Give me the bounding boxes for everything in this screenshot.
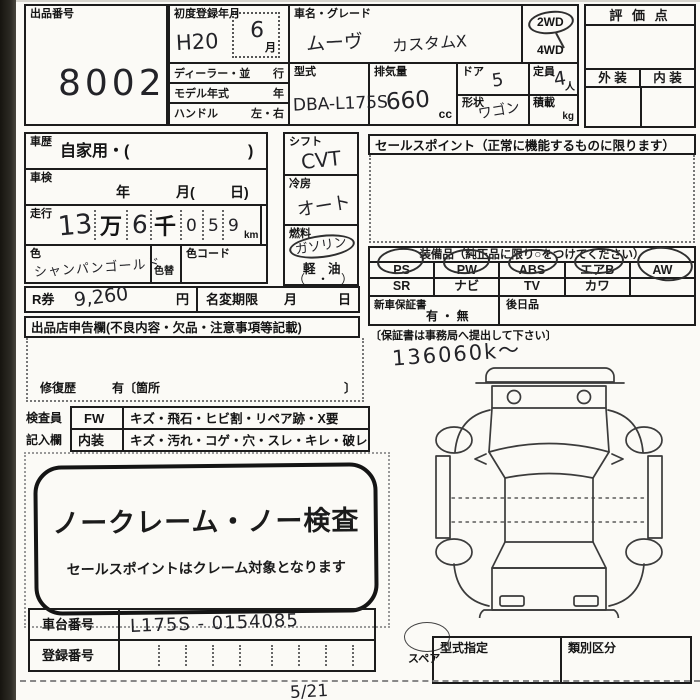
taillight-left bbox=[500, 596, 524, 606]
warranty-box: 新車保証書 有 ・ 無 後日品 bbox=[368, 295, 696, 326]
car-name-label: 車名・グレード bbox=[294, 8, 371, 21]
warranty-label: 新車保証書 bbox=[374, 299, 427, 311]
taillight-right bbox=[574, 596, 598, 606]
declaration-header-box: 出品店申告欄(不良内容・欠品・注意事項等記載) bbox=[24, 316, 360, 338]
first-registration-label: 初度登録年月 bbox=[174, 8, 240, 21]
ac-box: 冷房 オート bbox=[283, 174, 359, 226]
equip-tv: TV bbox=[500, 279, 565, 295]
capacity-label: 定員 bbox=[533, 66, 555, 79]
regno-sep-8 bbox=[352, 645, 354, 666]
inspector-row1-key: FW bbox=[84, 412, 104, 427]
mileage-sep-2 bbox=[126, 210, 128, 240]
inspector-label-2: 記入欄 bbox=[26, 434, 62, 448]
fuel-box: 燃料 ガソリン 軽 油 （ ・ ） bbox=[283, 224, 359, 286]
mileage-digit-3: 9 bbox=[228, 218, 239, 235]
mileage-end-divider bbox=[260, 206, 262, 244]
rename-day-unit: 日 bbox=[338, 293, 351, 308]
car-damage-diagram bbox=[402, 356, 698, 618]
inspector-label-1: 検査員 bbox=[26, 412, 62, 426]
rear-bumper bbox=[480, 610, 619, 618]
windshield bbox=[489, 444, 609, 479]
registration-number-label: 登録番号 bbox=[42, 649, 94, 664]
regno-sep-5 bbox=[271, 645, 273, 666]
wheel-front-right bbox=[626, 427, 662, 453]
capacity-load-box: 定員 4 人 積載 kg bbox=[528, 62, 579, 126]
mileage-sep-3 bbox=[150, 210, 152, 240]
handle-options: 左・右 bbox=[251, 104, 284, 124]
lot-label: 出品番号 bbox=[30, 8, 74, 21]
later-items-label: 後日品 bbox=[506, 299, 539, 312]
color-label: 色 bbox=[30, 248, 41, 261]
door-label: ドア bbox=[462, 66, 484, 79]
sales-point-header-box: セールスポイント（正常に機能するものに限ります） bbox=[368, 134, 696, 155]
car-name-box: 車名・グレード ムーヴ カスタムX bbox=[288, 4, 523, 64]
mileage-10k-value: 13 bbox=[57, 211, 94, 241]
interior-score-label: 内 装 bbox=[641, 70, 694, 86]
type-designation-box: 型式指定 類別区分 bbox=[432, 636, 692, 684]
chassis-label-divider bbox=[118, 610, 120, 639]
stamp-subtitle: セールスポイントはクレーム対象となります bbox=[38, 556, 374, 580]
recycle-ticket-box: R券 9,260 円 名変期限 月 日 bbox=[24, 286, 360, 313]
auction-sheet: 出品番号 8002 初度登録年月 H20 6 月 車名・グレード ムーヴ カスタ… bbox=[0, 0, 700, 700]
mileage-10k-unit: 万 bbox=[100, 214, 122, 239]
type-designation-label: 型式指定 bbox=[440, 642, 488, 656]
mileage-sep-1 bbox=[94, 210, 96, 240]
shift-value: CVT bbox=[300, 148, 342, 172]
headlight-right bbox=[578, 391, 591, 404]
bottom-dashed-line bbox=[20, 680, 700, 682]
score-title: 評 価 点 bbox=[586, 6, 694, 26]
classification-label: 類別区分 bbox=[568, 642, 616, 656]
rename-month-unit: 月 bbox=[284, 293, 297, 308]
equip-empty bbox=[631, 279, 694, 295]
chassis-number-label: 車台番号 bbox=[42, 618, 94, 633]
no-claim-stamp: ノークレーム・ノー検査 セールスポイントはクレーム対象となります bbox=[33, 462, 379, 616]
dealer-label: ディーラー・並 bbox=[174, 64, 250, 82]
drive-type-box: 2WD 4WD bbox=[521, 4, 579, 64]
rear-window bbox=[492, 542, 606, 568]
model-year-row: モデル年式年 bbox=[170, 84, 288, 104]
color-code-label: 色コード bbox=[186, 248, 230, 261]
inspection-year-unit: 年 bbox=[116, 184, 130, 200]
mileage-sep-5 bbox=[202, 210, 204, 240]
door-shape-box: ドア 5 形状 ワゴン bbox=[456, 62, 530, 126]
wheel-rear-left bbox=[436, 539, 472, 565]
declaration-header: 出品店申告欄(不良内容・欠品・注意事項等記載) bbox=[31, 321, 302, 335]
load-unit: kg bbox=[562, 111, 574, 123]
front-panel bbox=[492, 386, 606, 408]
dealer-row: ディーラー・並行 bbox=[170, 64, 288, 84]
door-value: 5 bbox=[491, 71, 505, 90]
history-label: 車歴 bbox=[30, 136, 52, 149]
registration-month-value: 6 bbox=[249, 20, 264, 43]
displacement-label: 排気量 bbox=[374, 66, 407, 79]
scan-edge-artifact bbox=[0, 0, 16, 700]
type-box-divider bbox=[560, 638, 562, 682]
handle-label: ハンドル bbox=[174, 104, 218, 124]
equip-navi: ナビ bbox=[435, 279, 500, 295]
right-door-panel bbox=[648, 456, 662, 538]
fenders bbox=[454, 410, 644, 606]
inspector-row2-key: 内装 bbox=[78, 434, 104, 449]
headlight-left bbox=[508, 391, 521, 404]
color-change-label: 色替 bbox=[154, 266, 174, 278]
mirrors bbox=[475, 454, 623, 464]
inspection-label: 車検 bbox=[30, 172, 52, 185]
color-divider-1 bbox=[150, 246, 152, 282]
paper-top-edge bbox=[16, 0, 700, 2]
rticket-divider bbox=[196, 288, 198, 311]
shift-box: シフト CVT bbox=[283, 132, 359, 176]
drive-4wd-option: 4WD bbox=[537, 44, 564, 58]
lot-number-value: 8002 bbox=[58, 66, 166, 102]
registration-month-cell: 6 月 bbox=[232, 12, 280, 58]
displacement-unit: cc bbox=[439, 108, 452, 122]
repair-history-close: 〕 bbox=[344, 382, 356, 396]
date-note: 5/21 bbox=[290, 683, 329, 700]
stamp-title: ノークレーム・ノー検査 bbox=[38, 498, 374, 541]
model-code-box: 型式 DBA-L175S bbox=[288, 62, 370, 126]
history-paren-close: ) bbox=[248, 143, 253, 161]
fuel-paren: （ ・ ） bbox=[293, 273, 353, 287]
registration-number-row: 登録番号 bbox=[28, 639, 376, 672]
chassis-number-row: 車台番号 L175S - 0154085 bbox=[28, 608, 376, 641]
repair-history-label: 修復歴 bbox=[40, 382, 76, 396]
lot-number-box: 出品番号 8002 bbox=[24, 4, 168, 126]
history-value: 自家用・( bbox=[60, 143, 129, 161]
roof-sides bbox=[505, 478, 593, 542]
warranty-options: 有 ・ 無 bbox=[426, 310, 469, 324]
declaration-area: 修復歴 有〔箇所 〕 bbox=[26, 338, 364, 402]
front-bumper bbox=[486, 368, 614, 382]
inspection-date-box: 車検 年 月( 日) bbox=[24, 168, 268, 206]
inspector-col-divider bbox=[122, 408, 124, 450]
inspection-month-unit: 月( bbox=[176, 184, 195, 200]
mileage-digit-1: 0 bbox=[186, 218, 197, 235]
ac-value: オート bbox=[296, 194, 352, 220]
inspection-day-unit: 日) bbox=[230, 184, 249, 200]
regno-sep-3 bbox=[212, 645, 214, 666]
shift-label: シフト bbox=[289, 136, 322, 149]
capacity-load-divider bbox=[530, 94, 577, 96]
regno-sep-6 bbox=[298, 645, 300, 666]
displacement-value: 660 bbox=[385, 88, 430, 114]
warranty-divider bbox=[498, 297, 500, 324]
car-name-value: ムーヴ bbox=[306, 33, 364, 55]
dealer-label-right: 行 bbox=[273, 64, 284, 82]
sales-point-header: セールスポイント（正常に機能するものに限ります） bbox=[375, 139, 675, 153]
mileage-sep-6 bbox=[222, 210, 224, 240]
chassis-number-value: L175S - 0154085 bbox=[130, 612, 299, 636]
dealer-spec-box: ディーラー・並行 モデル年式年 ハンドル左・右 bbox=[168, 62, 290, 126]
load-label: 積載 bbox=[533, 97, 555, 110]
equipment-row-2: SR ナビ TV カワ bbox=[370, 279, 694, 295]
regno-sep-1 bbox=[158, 645, 160, 666]
repair-history-value: 有〔箇所 bbox=[112, 382, 160, 396]
wheel-rear-right bbox=[626, 539, 662, 565]
color-divider-2 bbox=[180, 246, 182, 282]
score-box: 評 価 点 外 装 内 装 bbox=[584, 4, 696, 128]
model-year-unit: 年 bbox=[273, 84, 284, 102]
ac-label: 冷房 bbox=[289, 178, 311, 191]
mileage-box: 走行 13 万 6 千 0 5 9 km bbox=[24, 204, 268, 246]
wheel-front-left bbox=[436, 427, 472, 453]
hood-sides bbox=[489, 408, 609, 452]
score-cell-divider bbox=[640, 88, 642, 126]
history-box: 車歴 自家用・( ) bbox=[24, 132, 268, 170]
regno-sep-7 bbox=[325, 645, 327, 666]
model-code-value: DBA-L175S bbox=[293, 94, 388, 114]
inspector-table: FW キズ・飛石・ヒビ割・リペア跡・X要 内装 キズ・汚れ・コゲ・穴・スレ・キレ… bbox=[70, 406, 370, 452]
yen-unit: 円 bbox=[176, 293, 189, 308]
inspector-row-divider bbox=[72, 428, 368, 430]
score-subheader: 外 装 内 装 bbox=[586, 68, 694, 88]
regno-sep-2 bbox=[185, 645, 187, 666]
exterior-score-label: 外 装 bbox=[586, 70, 641, 86]
color-value: シャンパンゴールド bbox=[34, 258, 161, 280]
mileage-label: 走行 bbox=[30, 208, 52, 221]
inspector-row1-value: キズ・飛石・ヒビ割・リペア跡・X要 bbox=[130, 412, 338, 426]
registration-year-value: H20 bbox=[175, 31, 219, 54]
handle-row: ハンドル左・右 bbox=[170, 104, 288, 124]
rear-panel bbox=[492, 568, 606, 610]
inspector-row2-value: キズ・汚れ・コゲ・穴・スレ・キレ・破レ bbox=[130, 434, 368, 448]
rename-deadline-label: 名変期限 bbox=[206, 293, 258, 308]
equip-leather: カワ bbox=[566, 279, 631, 295]
drive-2wd-circle-mark bbox=[527, 8, 575, 36]
mileage-sep-4 bbox=[180, 210, 182, 240]
model-year-label: モデル年式 bbox=[174, 84, 229, 102]
left-door-panel bbox=[436, 456, 450, 538]
capacity-unit: 人 bbox=[565, 82, 575, 94]
regno-sep-4 bbox=[239, 645, 241, 666]
model-code-label: 型式 bbox=[294, 66, 316, 79]
first-registration-box: 初度登録年月 H20 6 月 bbox=[168, 4, 290, 64]
door-shape-divider bbox=[458, 94, 528, 96]
mileage-1k-unit: 千 bbox=[154, 214, 176, 239]
regno-label-divider bbox=[118, 641, 120, 670]
month-unit-label: 月 bbox=[265, 42, 276, 55]
mileage-1k-value: 6 bbox=[131, 211, 149, 237]
equip-sr: SR bbox=[370, 279, 435, 295]
mileage-unit: km bbox=[244, 230, 258, 242]
recycle-ticket-label: R券 bbox=[32, 293, 54, 308]
sales-point-area bbox=[369, 155, 695, 243]
car-grade-value: カスタムX bbox=[392, 33, 468, 54]
color-box: 色 シャンパンゴールド 色替 色コード bbox=[24, 244, 268, 284]
recycle-ticket-value: 9,260 bbox=[73, 285, 129, 310]
mileage-digit-2: 5 bbox=[208, 218, 219, 235]
